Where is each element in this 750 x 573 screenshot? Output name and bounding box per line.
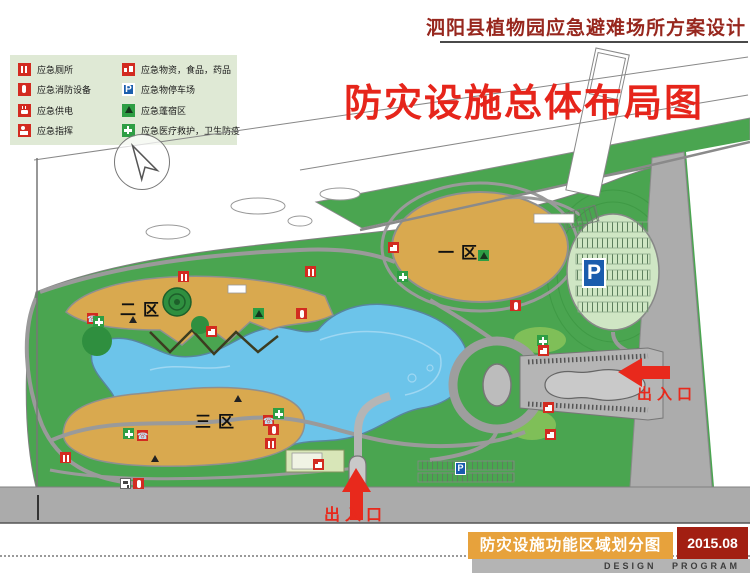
- footer-date-badge: 2015.08: [677, 527, 748, 560]
- zone-3-label: 三区: [195, 408, 241, 432]
- facility-icon-tent: [478, 250, 489, 261]
- parking-sign: P: [582, 258, 606, 288]
- facility-icon-toilet: [178, 271, 189, 282]
- facility-icon-medical: [273, 408, 284, 419]
- facility-icon-supplies: [388, 242, 399, 253]
- facility-icon-supplies: [545, 429, 556, 440]
- facility-icon-tent: [253, 308, 264, 319]
- poster-page: 泗阳县植物园应急避难场所方案设计 应急厕所 应急消防设备 应急供电 应急指挥 应: [0, 0, 750, 573]
- facility-icon-supplies: [206, 326, 217, 337]
- facility-icon-supplies: [543, 402, 554, 413]
- facility-icon-medical: [93, 316, 104, 327]
- facility-icon-fire: [510, 300, 521, 311]
- facility-icon-tentd: [128, 314, 139, 325]
- facility-icon-medical: [123, 428, 134, 439]
- facility-icon-toilet: [305, 266, 316, 277]
- parking-sign-small: P: [455, 462, 466, 475]
- footer-subtitle: 防灾设施功能区域划分图: [468, 532, 673, 559]
- east-entrance-label: 出入口: [637, 383, 697, 404]
- facility-icon-tentd: [233, 393, 244, 404]
- facility-icon-tentd: [150, 453, 161, 464]
- zone-2-label: 二区: [120, 296, 166, 320]
- footer-program-label: DESIGN PROGRAM: [472, 559, 750, 573]
- facility-icon-medical: [397, 271, 408, 282]
- facility-icon-toilet: [60, 452, 71, 463]
- facility-icon-fire: [133, 478, 144, 489]
- facility-icon-phone: [137, 430, 148, 441]
- facility-icon-supplies: [313, 459, 324, 470]
- north-compass-icon: [114, 134, 170, 190]
- facility-icon-supplies: [538, 345, 549, 356]
- facility-icon-fire: [296, 308, 307, 319]
- facility-icon-water: [120, 478, 131, 489]
- facility-icon-fire: [268, 424, 279, 435]
- south-entrance-label: 出入口: [324, 501, 387, 525]
- map-overlay-title: 防灾设施总体布局图: [344, 72, 704, 127]
- facility-icon-toilet: [265, 438, 276, 449]
